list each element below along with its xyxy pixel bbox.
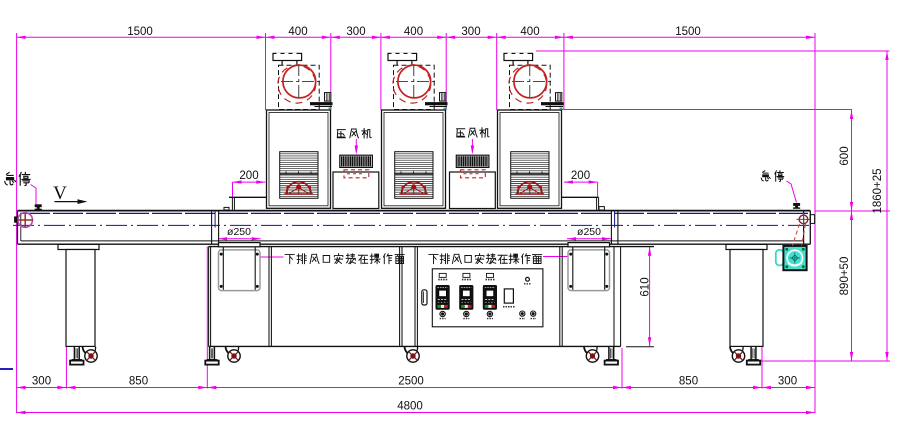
svg-text:850: 850 — [679, 376, 698, 388]
svg-text:890+50: 890+50 — [839, 257, 851, 296]
svg-text:200: 200 — [571, 170, 590, 182]
svg-text:400: 400 — [404, 26, 423, 38]
svg-text:300: 300 — [32, 376, 51, 388]
svg-text:1860+25: 1860+25 — [872, 168, 884, 213]
svg-text:ø250: ø250 — [577, 226, 601, 238]
svg-text:200: 200 — [239, 170, 258, 182]
svg-text:400: 400 — [288, 26, 307, 38]
svg-text:400: 400 — [520, 26, 539, 38]
svg-text:1500: 1500 — [127, 26, 153, 38]
svg-text:300: 300 — [778, 376, 797, 388]
svg-text:850: 850 — [129, 376, 148, 388]
svg-text:600: 600 — [839, 146, 851, 165]
svg-text:4800: 4800 — [397, 401, 423, 413]
svg-text:300: 300 — [461, 26, 480, 38]
svg-text:V: V — [53, 183, 67, 204]
svg-text:ø250: ø250 — [227, 226, 251, 238]
svg-text:300: 300 — [346, 26, 365, 38]
svg-text:1500: 1500 — [675, 26, 701, 38]
svg-text:610: 610 — [639, 277, 651, 296]
svg-text:2500: 2500 — [398, 376, 424, 388]
